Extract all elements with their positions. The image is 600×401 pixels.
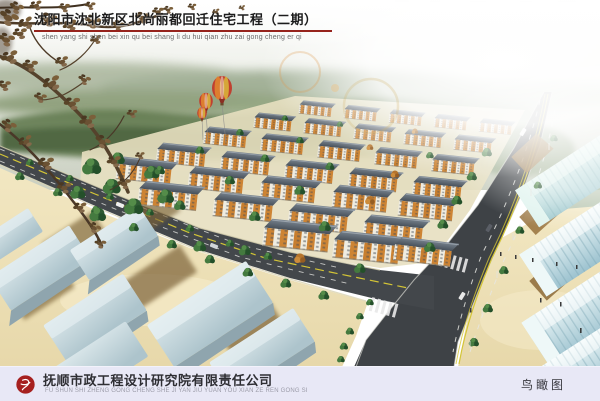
aerial-rendering — [0, 0, 600, 401]
company-block: 抚顺市政工程设计研究院有限责任公司 FU SHUN SHI ZHENG GONG… — [43, 374, 308, 395]
project-title-pinyin: shen yang shi shen bei xin qu bei shang … — [42, 34, 332, 41]
view-label: 鸟瞰图 — [521, 376, 566, 393]
footer-bar: 抚顺市政工程设计研究院有限责任公司 FU SHUN SHI ZHENG GONG… — [0, 366, 600, 401]
company-logo-icon — [15, 374, 36, 395]
title-block: 沈阳市沈北新区北尚丽都回迁住宅工程（二期） shen yang shi shen… — [34, 9, 332, 41]
presentation-board: 沈阳市沈北新区北尚丽都回迁住宅工程（二期） shen yang shi shen… — [0, 0, 600, 401]
title-underline — [34, 30, 332, 32]
company-pinyin: FU SHUN SHI ZHENG GONG CHENG SHE JI YAN … — [45, 388, 308, 394]
company-name: 抚顺市政工程设计研究院有限责任公司 — [43, 374, 308, 388]
project-title: 沈阳市沈北新区北尚丽都回迁住宅工程（二期） — [34, 9, 332, 28]
